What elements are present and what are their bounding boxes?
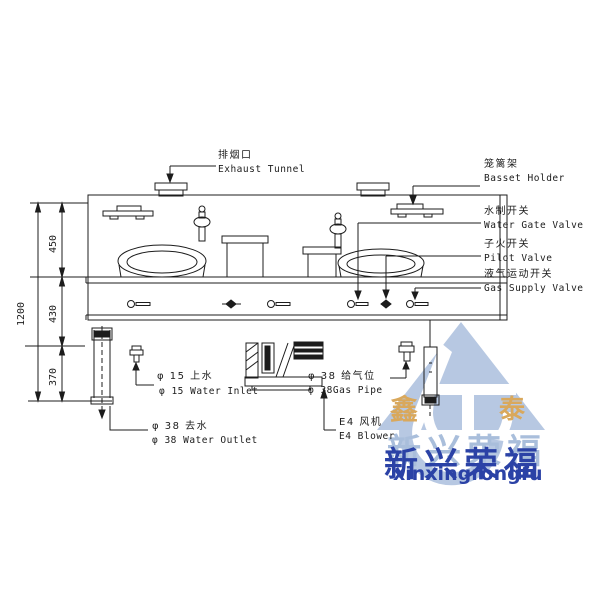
callout-water-gate-en: Water Gate Valve xyxy=(484,220,584,232)
callout-inlet-cn: φ 15 上水 xyxy=(157,371,213,383)
stove-line-drawing xyxy=(0,0,600,600)
wok-right xyxy=(338,249,424,277)
leader-gas-supply xyxy=(412,288,481,299)
callout-gas-pipe-en: φ 38Gas Pipe xyxy=(308,385,383,397)
exhaust-outlets xyxy=(155,183,389,196)
callout-water-gate-cn: 水制开关 xyxy=(484,206,530,218)
dimension-lines xyxy=(25,203,112,401)
faucet-left xyxy=(194,206,210,241)
callout-exhaust-en: Exhaust Tunnel xyxy=(218,164,305,176)
wok-left xyxy=(118,245,206,277)
callout-blower-en: E4 Blower xyxy=(339,431,395,443)
water-inlet-fitting xyxy=(130,346,154,385)
dim-middle: 430 xyxy=(48,305,59,323)
callout-outlet-en: φ 38 Water Outlet xyxy=(152,435,258,447)
pot-right xyxy=(303,247,341,277)
faucet-right xyxy=(330,213,346,248)
control-knobs xyxy=(128,300,429,308)
diagram-canvas: 鑫 泰 新兴荣福 新兴荣福 xinxingrongfu xyxy=(0,0,600,600)
basket-shelves xyxy=(103,204,443,219)
dim-lower: 370 xyxy=(48,368,59,386)
stove-body xyxy=(86,195,507,320)
callout-pilot-cn: 子火开关 xyxy=(484,239,530,251)
pipe-right xyxy=(422,320,439,418)
callout-inlet-en: φ 15 Water Inlet xyxy=(159,386,259,398)
callout-exhaust-cn: 排烟口 xyxy=(218,150,253,162)
callout-gas-supply-cn: 液气运动开关 xyxy=(484,269,553,281)
callout-basket-en: Basset Holder xyxy=(484,173,565,185)
gas-inlet-fitting xyxy=(390,342,414,378)
dim-upper: 450 xyxy=(48,235,59,253)
callout-basket-cn: 笼篱架 xyxy=(484,159,519,171)
callout-pilot-en: Pilot Valve xyxy=(484,253,552,265)
callout-gas-supply-en: Gas Supply Valve xyxy=(484,283,584,295)
leader-exhaust xyxy=(167,166,216,182)
drain-pipe-left xyxy=(91,326,148,430)
dim-total: 1200 xyxy=(16,302,27,326)
pot-left xyxy=(222,236,268,277)
callout-blower-cn: E4 风机 xyxy=(339,417,382,429)
callout-gas-pipe-cn: φ 38 给气位 xyxy=(308,371,376,383)
callout-outlet-cn: φ 38 去水 xyxy=(152,421,208,433)
